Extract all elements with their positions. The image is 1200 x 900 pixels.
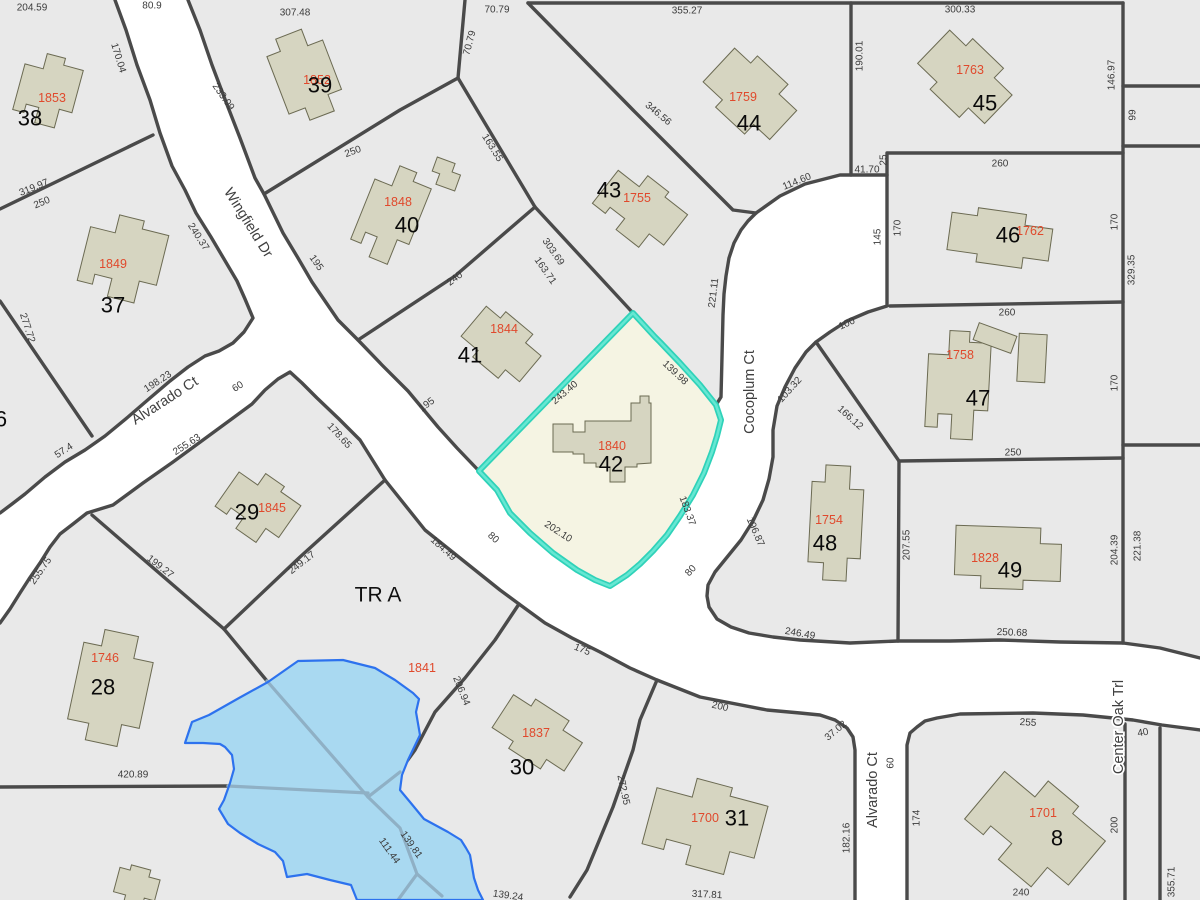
svg-text:1844: 1844 <box>490 322 518 336</box>
svg-text:300.33: 300.33 <box>945 5 976 16</box>
svg-text:39: 39 <box>308 73 332 98</box>
svg-text:1746: 1746 <box>91 651 119 665</box>
svg-text:28: 28 <box>91 675 115 700</box>
svg-text:200: 200 <box>1110 816 1121 833</box>
svg-text:1837: 1837 <box>522 726 550 740</box>
svg-text:355.71: 355.71 <box>1167 866 1178 897</box>
svg-text:190.01: 190.01 <box>855 40 866 71</box>
svg-text:46: 46 <box>996 223 1020 248</box>
svg-text:240: 240 <box>1013 888 1030 899</box>
svg-text:6: 6 <box>0 407 7 432</box>
svg-text:70.79: 70.79 <box>484 5 509 16</box>
svg-text:250: 250 <box>1005 448 1022 459</box>
svg-text:1754: 1754 <box>815 513 843 527</box>
svg-text:1759: 1759 <box>729 90 757 104</box>
svg-text:204.59: 204.59 <box>17 3 48 14</box>
svg-text:1755: 1755 <box>623 191 651 205</box>
svg-text:1849: 1849 <box>99 257 127 271</box>
svg-text:1848: 1848 <box>384 195 412 209</box>
svg-text:8: 8 <box>1051 826 1063 851</box>
svg-text:99: 99 <box>1128 109 1139 121</box>
svg-text:145: 145 <box>873 228 884 245</box>
svg-text:221.38: 221.38 <box>1133 530 1144 561</box>
svg-text:1700: 1700 <box>691 811 719 825</box>
svg-text:1845: 1845 <box>258 501 286 515</box>
svg-text:182.16: 182.16 <box>842 822 853 853</box>
svg-text:329.35: 329.35 <box>1127 254 1138 285</box>
svg-text:1758: 1758 <box>946 348 974 362</box>
svg-text:29: 29 <box>235 500 259 525</box>
svg-text:1853: 1853 <box>38 91 66 105</box>
svg-text:Alvarado Ct: Alvarado Ct <box>865 752 881 828</box>
svg-text:31: 31 <box>725 806 749 831</box>
svg-text:260: 260 <box>999 308 1016 319</box>
svg-text:1763: 1763 <box>956 63 984 77</box>
svg-text:45: 45 <box>973 91 997 116</box>
svg-text:48: 48 <box>813 531 837 556</box>
svg-text:Cocoplum Ct: Cocoplum Ct <box>742 350 758 434</box>
svg-text:307.48: 307.48 <box>280 8 311 19</box>
svg-text:317.81: 317.81 <box>691 889 723 900</box>
svg-text:420.89: 420.89 <box>118 770 149 781</box>
svg-text:49: 49 <box>998 558 1022 583</box>
svg-text:Center Oak Trl: Center Oak Trl <box>1111 680 1127 774</box>
svg-text:30: 30 <box>510 755 534 780</box>
svg-text:250.68: 250.68 <box>997 627 1028 639</box>
svg-text:1762: 1762 <box>1016 224 1044 238</box>
svg-text:174: 174 <box>912 809 923 826</box>
svg-text:41.70: 41.70 <box>854 165 879 176</box>
svg-text:207.55: 207.55 <box>902 529 913 560</box>
svg-text:255: 255 <box>1019 717 1037 729</box>
svg-text:41: 41 <box>458 343 482 368</box>
svg-text:204.39: 204.39 <box>1110 534 1121 565</box>
svg-text:38: 38 <box>18 106 42 131</box>
svg-text:1828: 1828 <box>971 551 999 565</box>
svg-text:60: 60 <box>886 757 897 769</box>
svg-text:47: 47 <box>966 386 990 411</box>
svg-text:43: 43 <box>597 178 621 203</box>
svg-text:146.97: 146.97 <box>1107 59 1118 90</box>
svg-text:355.27: 355.27 <box>672 6 703 17</box>
svg-text:37: 37 <box>101 293 125 318</box>
svg-text:170: 170 <box>893 219 904 236</box>
svg-text:260: 260 <box>992 159 1009 170</box>
svg-text:TR A: TR A <box>355 584 402 607</box>
svg-text:80.9: 80.9 <box>142 1 162 12</box>
svg-text:25: 25 <box>879 154 890 166</box>
svg-text:170: 170 <box>1110 374 1121 391</box>
svg-text:1841: 1841 <box>408 661 436 675</box>
svg-text:1701: 1701 <box>1029 806 1057 820</box>
svg-text:44: 44 <box>737 111 761 136</box>
svg-text:170: 170 <box>1110 213 1121 230</box>
svg-text:42: 42 <box>599 452 623 477</box>
svg-text:40: 40 <box>395 213 419 238</box>
